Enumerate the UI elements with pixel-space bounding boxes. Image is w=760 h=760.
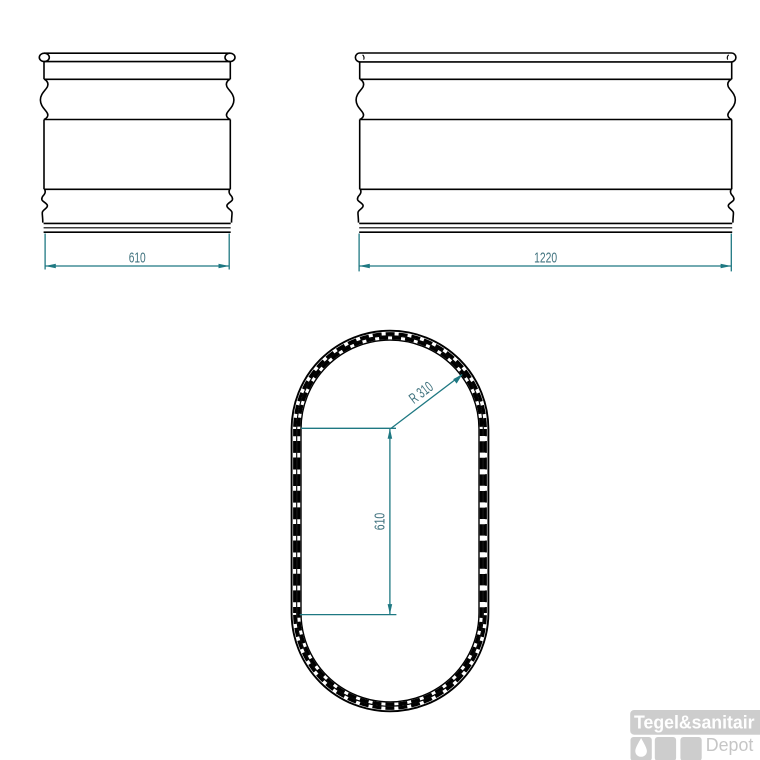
svg-text:Tegel&sanitair: Tegel&sanitair: [634, 711, 755, 732]
svg-text:610: 610: [129, 250, 146, 267]
svg-text:1220: 1220: [534, 250, 557, 267]
svg-text:Depot: Depot: [706, 734, 754, 755]
svg-text:610: 610: [372, 513, 389, 531]
svg-text:R 310: R 310: [406, 379, 437, 408]
